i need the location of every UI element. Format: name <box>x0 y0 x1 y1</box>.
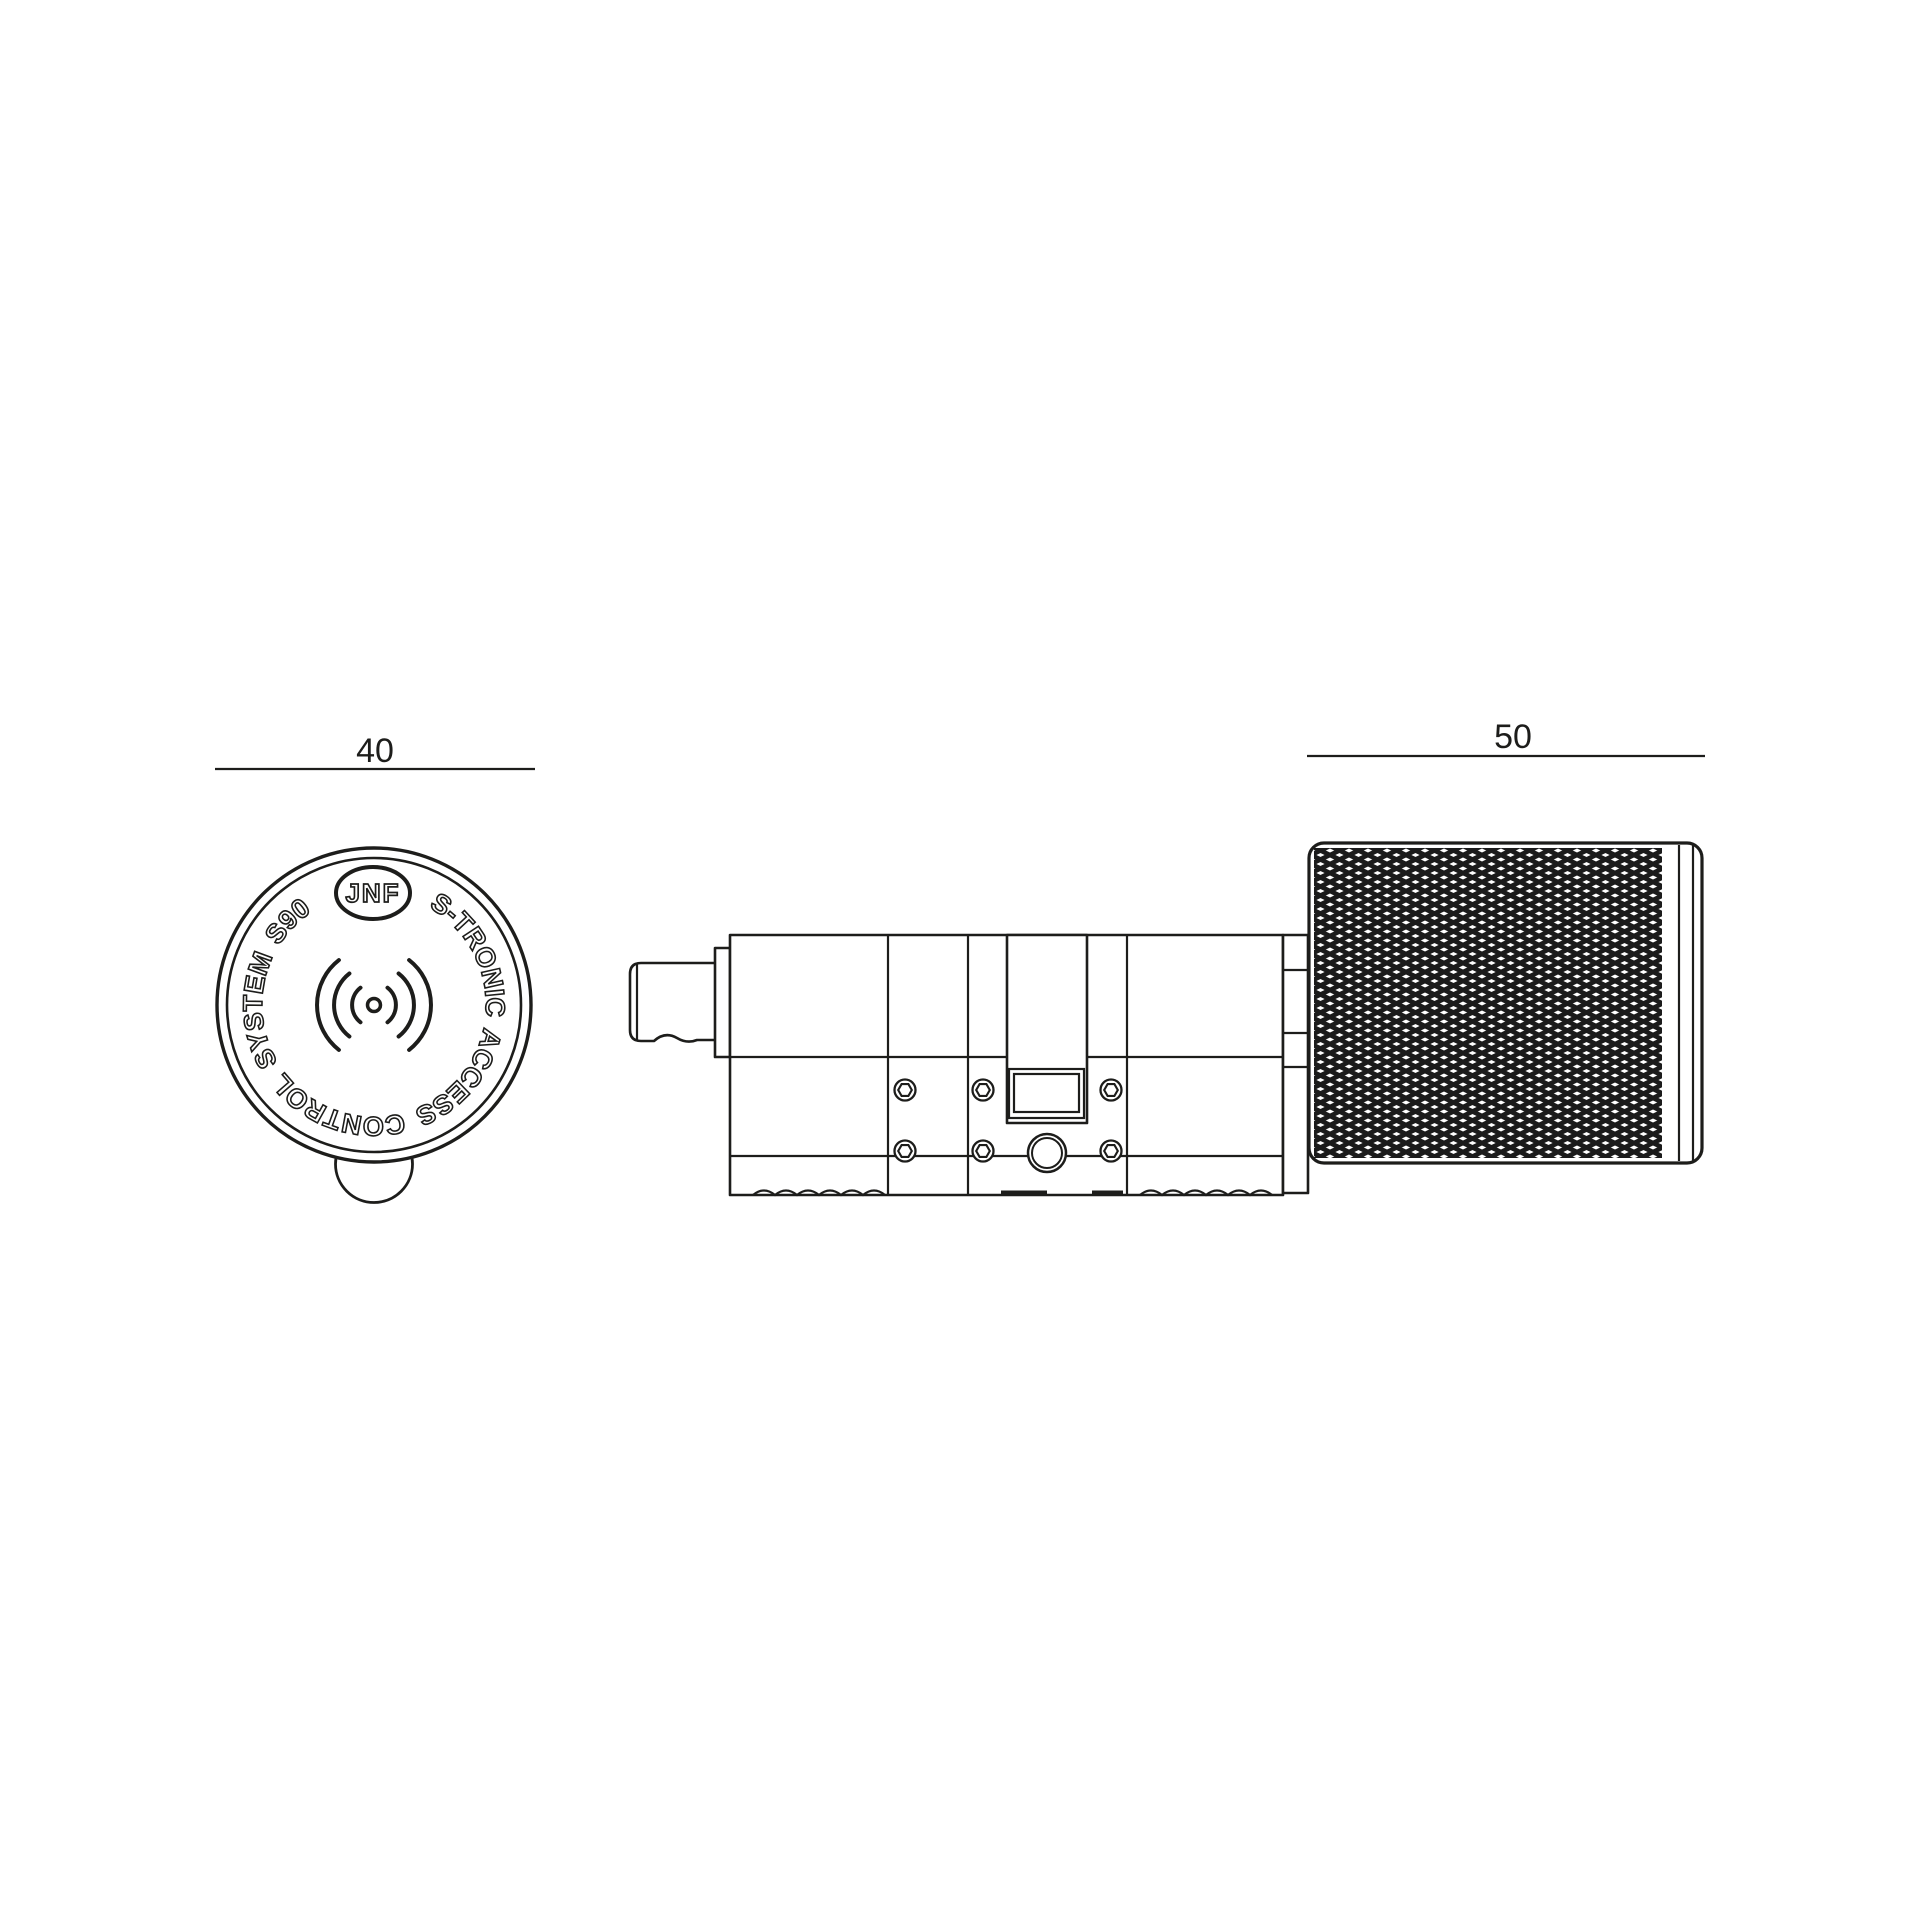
hex-screw <box>973 1141 994 1162</box>
jnf-logo-text: JNF <box>345 878 400 908</box>
cam-window-outer <box>1009 1069 1084 1118</box>
bottom-notch-right <box>1092 1191 1123 1196</box>
front-view-knob-face: JNF S-TRONIC ACCESS CONTROL SYSTEM S90 <box>217 848 531 1203</box>
hex-screw <box>895 1141 916 1162</box>
dimension-40: 40 <box>215 732 535 770</box>
dimension-50-label: 50 <box>1494 718 1532 756</box>
side-view-cylinder <box>630 843 1702 1195</box>
hex-screw <box>895 1080 916 1101</box>
cam-shaft <box>630 963 715 1042</box>
fixing-screw-hole-outer <box>1028 1134 1066 1172</box>
knob-knurl-pattern <box>1314 848 1662 1158</box>
knurled-knob <box>1309 843 1702 1163</box>
hex-screw <box>973 1080 994 1101</box>
bottom-notch-left <box>1001 1191 1047 1196</box>
technical-drawing-page: 40 50 <box>0 0 1920 1920</box>
hex-screw <box>1101 1080 1122 1101</box>
jnf-logo: JNF <box>336 867 410 919</box>
knob-adapter-collar <box>1283 935 1308 1193</box>
dimension-50: 50 <box>1307 718 1705 756</box>
lock-cylinder-technical-drawing: 40 50 <box>0 0 1920 1920</box>
rfid-center-dot <box>368 999 381 1012</box>
front-flange <box>715 948 730 1057</box>
dimension-40-label: 40 <box>356 732 394 770</box>
hex-screw <box>1101 1141 1122 1162</box>
